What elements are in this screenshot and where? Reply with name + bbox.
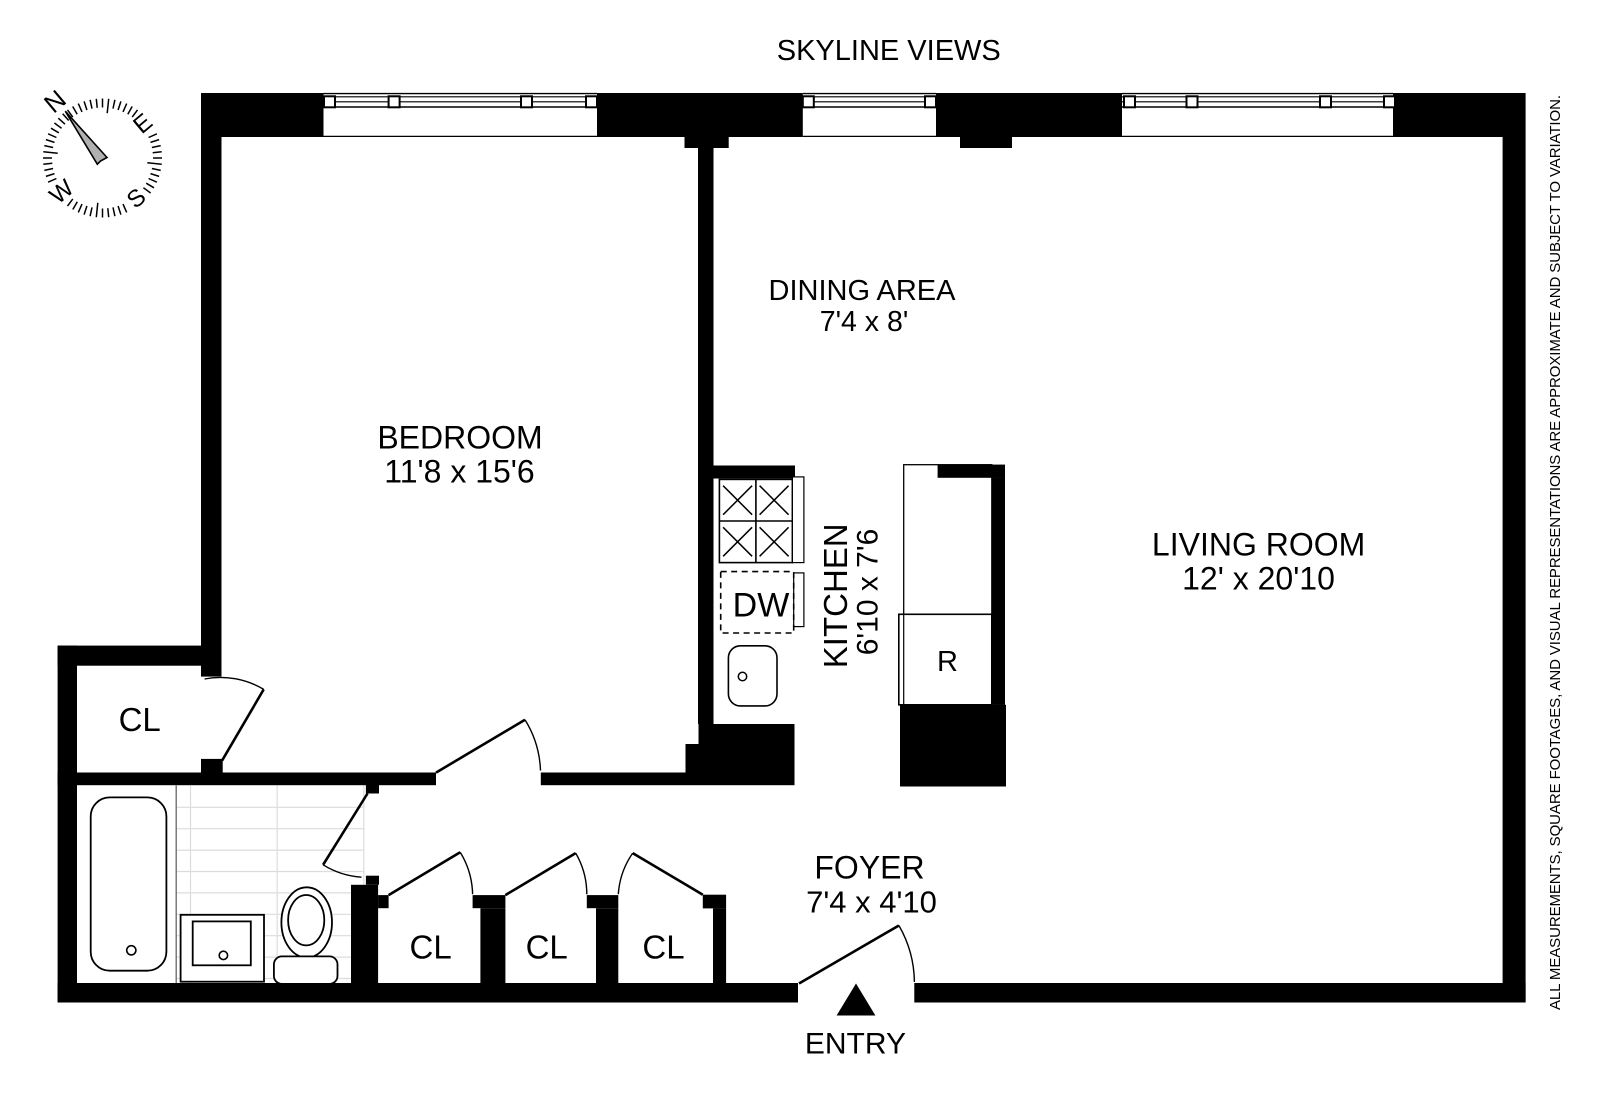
svg-text:LIVING ROOM: LIVING ROOM: [1152, 527, 1365, 563]
svg-text:FOYER: FOYER: [814, 850, 924, 886]
svg-text:SKYLINE VIEWS: SKYLINE VIEWS: [777, 35, 1001, 67]
svg-text:7'4 x 4'10: 7'4 x 4'10: [806, 885, 937, 920]
svg-text:ALL MEASUREMENTS, SQUARE FOOTA: ALL MEASUREMENTS, SQUARE FOOTAGES, AND V…: [1547, 95, 1564, 1010]
svg-text:ENTRY: ENTRY: [805, 1028, 906, 1061]
svg-text:DW: DW: [733, 587, 790, 625]
svg-text:7'4 x 8': 7'4 x 8': [820, 306, 909, 338]
svg-text:CL: CL: [526, 929, 568, 966]
svg-text:6'10 x 7'6: 6'10 x 7'6: [852, 529, 885, 656]
svg-text:R: R: [937, 646, 958, 678]
svg-text:KITCHEN: KITCHEN: [817, 523, 854, 668]
svg-text:CL: CL: [410, 929, 452, 966]
svg-text:11'8 x 15'6: 11'8 x 15'6: [384, 453, 534, 489]
svg-text:CL: CL: [642, 929, 684, 966]
svg-text:BEDROOM: BEDROOM: [377, 419, 542, 455]
svg-text:DINING AREA: DINING AREA: [769, 275, 957, 307]
svg-text:CL: CL: [119, 701, 161, 738]
svg-text:12' x 20'10: 12' x 20'10: [1182, 561, 1335, 597]
